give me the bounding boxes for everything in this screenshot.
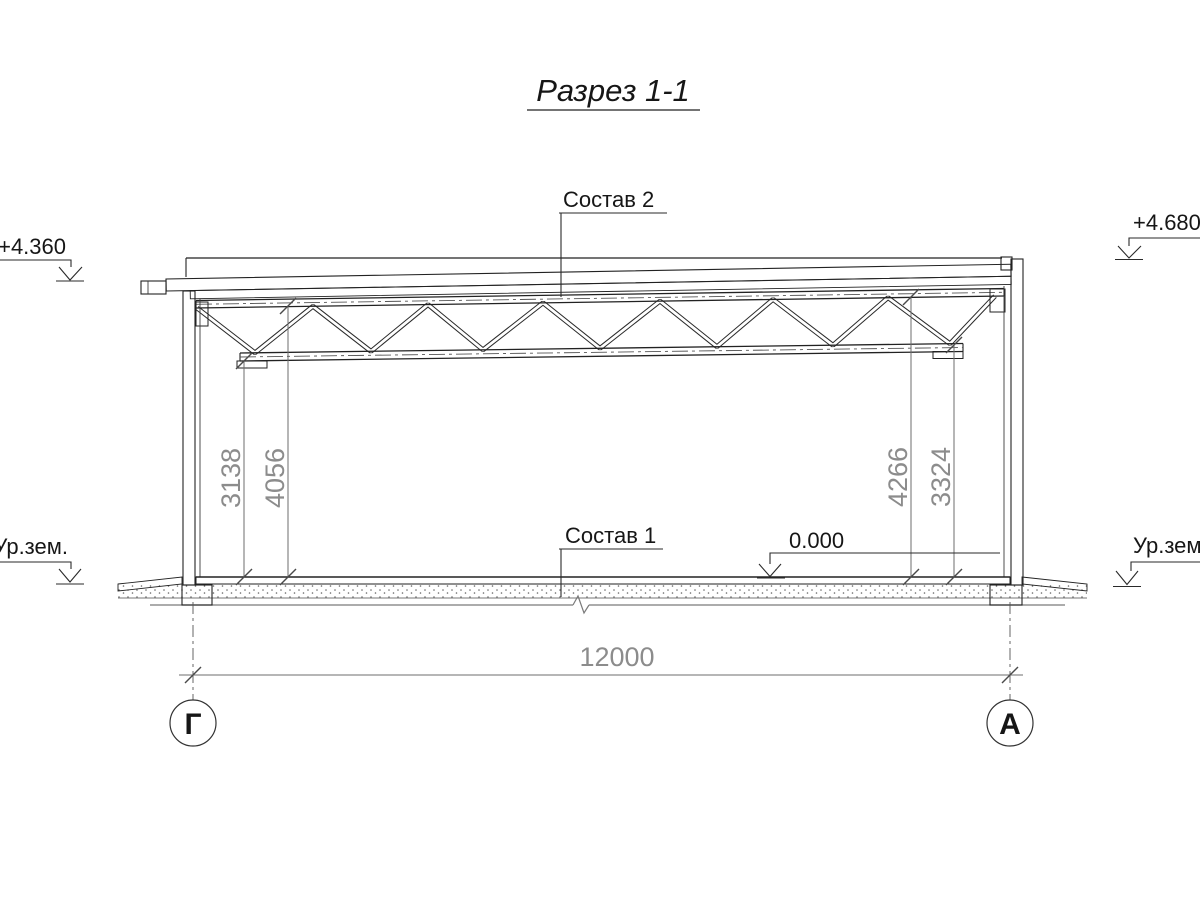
dim-value-left-inner: 3138 [216, 448, 246, 508]
left-wall-panel [183, 291, 195, 585]
elevation-floor-zero-value: 0.000 [789, 528, 844, 553]
axis-label-right: А [999, 708, 1021, 741]
roof-deck-band [190, 276, 1011, 299]
right-wall-panel [1011, 259, 1023, 585]
elevation-roof-right: +4.680 [1115, 210, 1200, 260]
truss-seat-right [933, 352, 963, 359]
callout-roof-composition-label: Состав 2 [563, 187, 654, 212]
truss-seat-left [237, 361, 267, 368]
steel-truss [196, 289, 1005, 369]
elevation-roof-left: +4.360 [0, 234, 84, 281]
ground-level-left-label: Ур.зем. [0, 534, 68, 559]
drawing-title: Разрез 1-1 [536, 73, 690, 108]
dim-value-right-outer: 3324 [926, 447, 956, 507]
elevation-arrow [757, 553, 1000, 578]
drawing-sheet: Разрез 1-1 [0, 0, 1200, 900]
span-dimension: 12000 Г А [170, 602, 1033, 746]
sub-base-layer [118, 584, 1087, 598]
roof-assembly [141, 257, 1012, 299]
section-drawing-1-1: Разрез 1-1 [0, 0, 1200, 900]
elevation-arrow [1115, 238, 1200, 260]
ground-bottom-line-with-break [150, 596, 1065, 613]
composition-callouts: Состав 2 Состав 1 [559, 187, 667, 597]
floor-slab [196, 577, 1010, 584]
elevation-arrow [0, 260, 84, 281]
roof-gutter-left [141, 281, 166, 294]
span-dim-value: 12000 [579, 642, 654, 672]
elevation-roof-left-value: +4.360 [0, 234, 66, 259]
ground-level-right: Ур.зем. [1113, 533, 1200, 587]
elevation-roof-right-value: +4.680 [1133, 210, 1200, 235]
elevation-arrow [0, 562, 84, 584]
axis-label-left: Г [184, 708, 201, 741]
parapet-cap-right [1001, 257, 1012, 270]
dim-value-left-outer: 4056 [260, 448, 290, 508]
dim-value-right-inner: 4266 [883, 447, 913, 507]
ground-level-left: Ур.зем. [0, 534, 84, 584]
elevation-floor-zero: 0.000 [757, 528, 1000, 578]
title-block: Разрез 1-1 [527, 73, 700, 110]
callout-floor-composition-label: Состав 1 [565, 523, 656, 548]
ground-level-right-label: Ур.зем. [1133, 533, 1200, 558]
elevation-arrow [1113, 562, 1200, 587]
callout-roof-composition: Состав 2 [559, 187, 667, 297]
floor-and-ground [118, 577, 1087, 613]
